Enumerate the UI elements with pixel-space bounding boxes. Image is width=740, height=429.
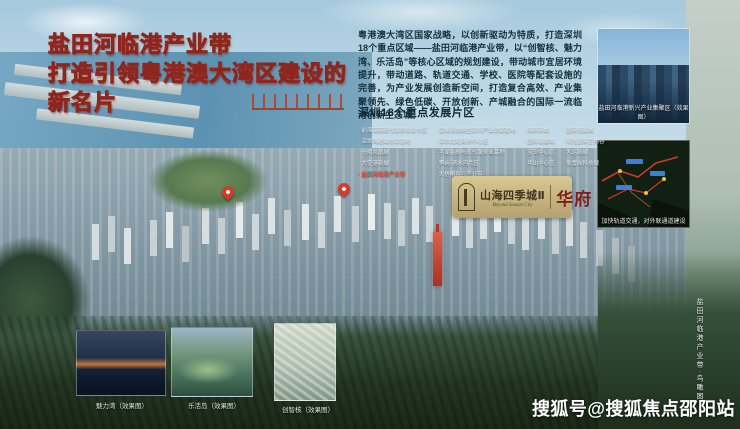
districts-panel: 深圳18个重点发展片区 前海深港现代服务业合作区 深圳湾超级总部基地 光明凤凰城… xyxy=(358,104,628,178)
district-item: 大空港新城 xyxy=(358,159,427,167)
poster-headline: 盐田河临港产业带 打造引领粤港澳大湾区建设的 新名片 xyxy=(48,30,347,117)
district-item: 海洋新城 xyxy=(524,126,555,134)
district-item: 留仙洞战略性新兴产业总部基地 xyxy=(435,126,515,134)
sohu-watermark: 搜狐号@搜狐焦点邵阳站 xyxy=(532,395,735,421)
transit-photo-caption: 加快轨道交通，对外联通道建设 xyxy=(598,216,689,225)
innovation-core-caption: 创智核（效果图） xyxy=(282,404,334,414)
district-item: 国际低碳城 xyxy=(563,126,605,134)
leisure-island-caption: 乐活岛（效果图） xyxy=(188,400,240,410)
aerial-view-side-caption: 盐田河临港产业带·鸟瞰图 xyxy=(694,298,704,401)
poster-canvas: 盐田河临港产业带 打造引领粤港澳大湾区建设的 新名片 粤港澳大湾区国家战略，以创… xyxy=(0,0,740,429)
district-item: 大运新城 xyxy=(563,148,605,156)
highlighted-project-tower xyxy=(433,232,442,286)
districts-column-1: 前海深港现代服务业合作区 深圳湾超级总部基地 光明凤凰城 大空港新城 盐田河临港… xyxy=(358,126,427,178)
charm-bay-caption: 魅力湾（效果图） xyxy=(96,400,148,410)
district-item: 宝安中心区 xyxy=(524,148,555,156)
district-item: 国际会展城 xyxy=(524,137,555,145)
districts-heading: 深圳18个重点发展片区 xyxy=(358,104,628,120)
headline-line-2: 打造引领粤港澳大湾区建设的 xyxy=(48,59,347,88)
district-item: 深圳湾超级总部基地 xyxy=(358,137,427,145)
district-item: 光明凤凰城 xyxy=(358,148,427,156)
logo-divider xyxy=(550,185,551,209)
project-seal: 华府 xyxy=(556,185,592,210)
districts-columns: 前海深港现代服务业合作区 深圳湾超级总部基地 光明凤凰城 大空港新城 盐田河临港… xyxy=(358,126,628,178)
green-island xyxy=(148,150,268,212)
skyline-towers xyxy=(0,0,7,36)
districts-column-3: 海洋新城 国际会展城 宝安中心区 坪山中心区 xyxy=(524,126,555,178)
district-item: 坝光国际生物谷 xyxy=(563,137,605,145)
project-logo-card: 山海四季城Ⅱ Beyond Season City 华府 xyxy=(452,176,572,218)
district-item: 坂雪岗科技城 xyxy=(563,159,605,167)
headline-line-1: 盐田河临港产业带 xyxy=(48,30,347,59)
tower-arch-emblem-icon xyxy=(458,183,475,211)
project-name-en: Beyond Season City xyxy=(480,203,545,208)
district-item: 平湖金融与现代服务业基地 xyxy=(435,148,515,156)
project-name-cn: 山海四季城Ⅱ xyxy=(480,187,545,203)
district-item: 前海深港现代服务业合作区 xyxy=(358,126,427,134)
district-item: 坪山中心区 xyxy=(524,159,555,167)
headline-line-3: 新名片 xyxy=(48,88,347,117)
innovation-core-photo xyxy=(274,323,336,401)
charm-bay-photo xyxy=(76,330,166,396)
districts-column-2: 留仙洞战略性新兴产业总部基地 深圳北站商务中心区 平湖金融与现代服务业基地 笋岗… xyxy=(435,126,515,178)
district-item: 深圳北站商务中心区 xyxy=(435,137,515,145)
district-item-highlighted: 盐田河临港产业带 xyxy=(358,170,427,178)
districts-column-4: 国际低碳城 坝光国际生物谷 大运新城 坂雪岗科技城 xyxy=(563,126,605,178)
district-item: 笋岗-清水河片区 xyxy=(435,159,515,167)
project-name-block: 山海四季城Ⅱ Beyond Season City xyxy=(480,187,545,208)
leisure-island-photo xyxy=(171,327,253,397)
